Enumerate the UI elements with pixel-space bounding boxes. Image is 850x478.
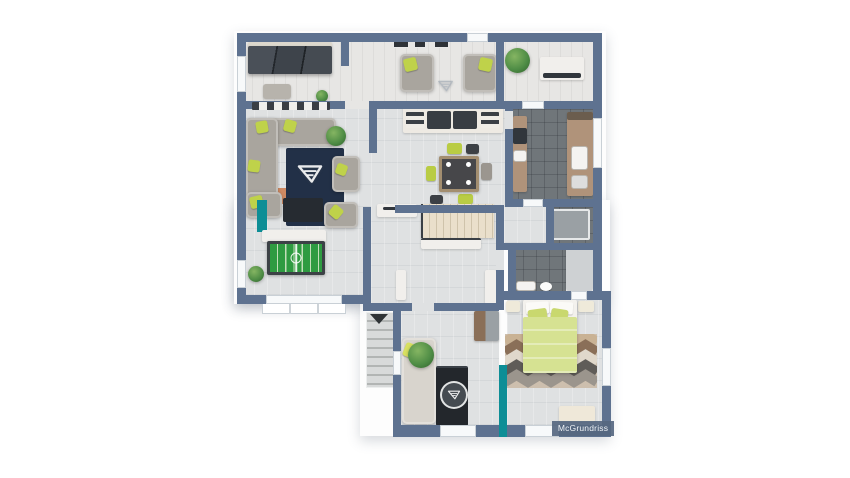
bench-gray xyxy=(263,84,291,99)
wall-landing-top xyxy=(363,303,401,311)
kitchen-oven xyxy=(571,175,588,189)
window-kitchen-right xyxy=(593,118,602,168)
stairs-direction-arrow xyxy=(370,314,388,324)
kitchen-sink xyxy=(571,146,588,170)
logo-rug-icon xyxy=(296,162,324,186)
window-left-top xyxy=(237,56,246,92)
rug-teal xyxy=(257,200,267,232)
dining-sideboard-shelf-right xyxy=(481,112,499,128)
logo-floor-icon xyxy=(437,79,454,93)
window-left-living xyxy=(237,260,246,288)
bedroom-bench xyxy=(559,406,595,422)
foosball-pitch xyxy=(270,244,322,272)
door-teal-bedroom xyxy=(499,365,507,437)
door-exterior-stairs xyxy=(393,351,401,375)
kitchen-shelf-dark xyxy=(567,112,593,120)
wall-shower-bottom xyxy=(504,243,602,250)
dining-chair-dark-top xyxy=(466,144,479,154)
wall-outer-top xyxy=(237,33,602,42)
armchair-right-pillow xyxy=(478,57,493,72)
tv-lowboard xyxy=(283,198,323,222)
dining-chair-lime-bottom xyxy=(458,194,473,204)
wall-shower-left xyxy=(546,207,554,245)
wall-stub-wardrobe-room xyxy=(341,38,349,66)
wall-dining-stub xyxy=(369,109,377,153)
dining-chair-lime-left xyxy=(426,166,436,181)
window-games-bay-band xyxy=(266,295,342,304)
dining-sideboard-door-2 xyxy=(453,111,477,129)
wall-hallway-top xyxy=(395,205,496,213)
dining-table xyxy=(439,156,479,192)
dining-sideboard-shelf-left xyxy=(406,112,424,128)
bathroom-sink xyxy=(516,281,536,291)
door-top-entry xyxy=(467,33,488,42)
study-wardrobe xyxy=(474,311,499,341)
wall-hallway-left xyxy=(363,207,371,310)
pantry-sideboard-items xyxy=(543,73,581,78)
sofa-pillow-3 xyxy=(247,159,261,173)
bathroom-wardrobe xyxy=(566,247,593,291)
hall-cabinet-left xyxy=(396,270,406,300)
opening-top-strip xyxy=(345,101,369,109)
foosball-table xyxy=(267,241,325,275)
sofa-pillow-1 xyxy=(255,120,269,134)
opening-study-door xyxy=(412,303,434,311)
door-kitchen-hall xyxy=(523,199,543,207)
plate-3 xyxy=(446,180,451,185)
dark-wardrobe xyxy=(248,46,332,74)
armchair-living-right xyxy=(332,156,360,192)
dining-chair-dark-bottom xyxy=(430,195,443,204)
dining-chair-lime-top xyxy=(447,143,462,154)
dining-sideboard-door-1 xyxy=(427,111,451,129)
toilet xyxy=(540,282,552,291)
wall-pantry-divider xyxy=(496,38,504,104)
opening-hall-bath xyxy=(496,250,504,270)
window-bedroom-top xyxy=(571,291,587,300)
dining-chair-gray-right xyxy=(481,163,492,180)
bed-duvet xyxy=(523,317,577,373)
curtain-valance xyxy=(252,102,330,110)
hall-cabinet-right xyxy=(485,270,496,304)
stair-sideboard xyxy=(421,238,481,249)
kitchen-appliance-dark xyxy=(513,128,527,144)
plant-living xyxy=(326,126,346,146)
window-study-bottom xyxy=(440,425,476,437)
wall-kitchen-bottom xyxy=(505,199,602,207)
plant-large-pantry xyxy=(505,48,530,73)
door-kitchen-pantry xyxy=(522,101,544,109)
plate-2 xyxy=(466,162,471,167)
plant-games-room xyxy=(248,266,264,282)
plate-4 xyxy=(466,180,471,185)
wall-outer-right-mid xyxy=(593,207,602,295)
floor-corridor xyxy=(504,207,546,243)
floor-plan: McGrundriss xyxy=(0,0,850,478)
nightstand-right xyxy=(578,301,594,312)
logo-piano-icon xyxy=(440,381,468,409)
wall-divider-top-strip-2 xyxy=(369,101,602,109)
plant-study xyxy=(408,342,434,368)
opening-kitchen-door xyxy=(505,111,513,129)
wall-bathroom-left xyxy=(508,250,516,295)
wall-study-top xyxy=(393,303,499,311)
kitchen-dishwasher xyxy=(513,150,527,162)
watermark-label: McGrundriss xyxy=(558,423,608,433)
shower-cabin xyxy=(550,209,590,240)
nightstand-left xyxy=(506,301,520,312)
watermark-badge: McGrundriss xyxy=(552,421,614,436)
plate-1 xyxy=(446,162,451,167)
window-bedroom-right xyxy=(602,348,611,386)
